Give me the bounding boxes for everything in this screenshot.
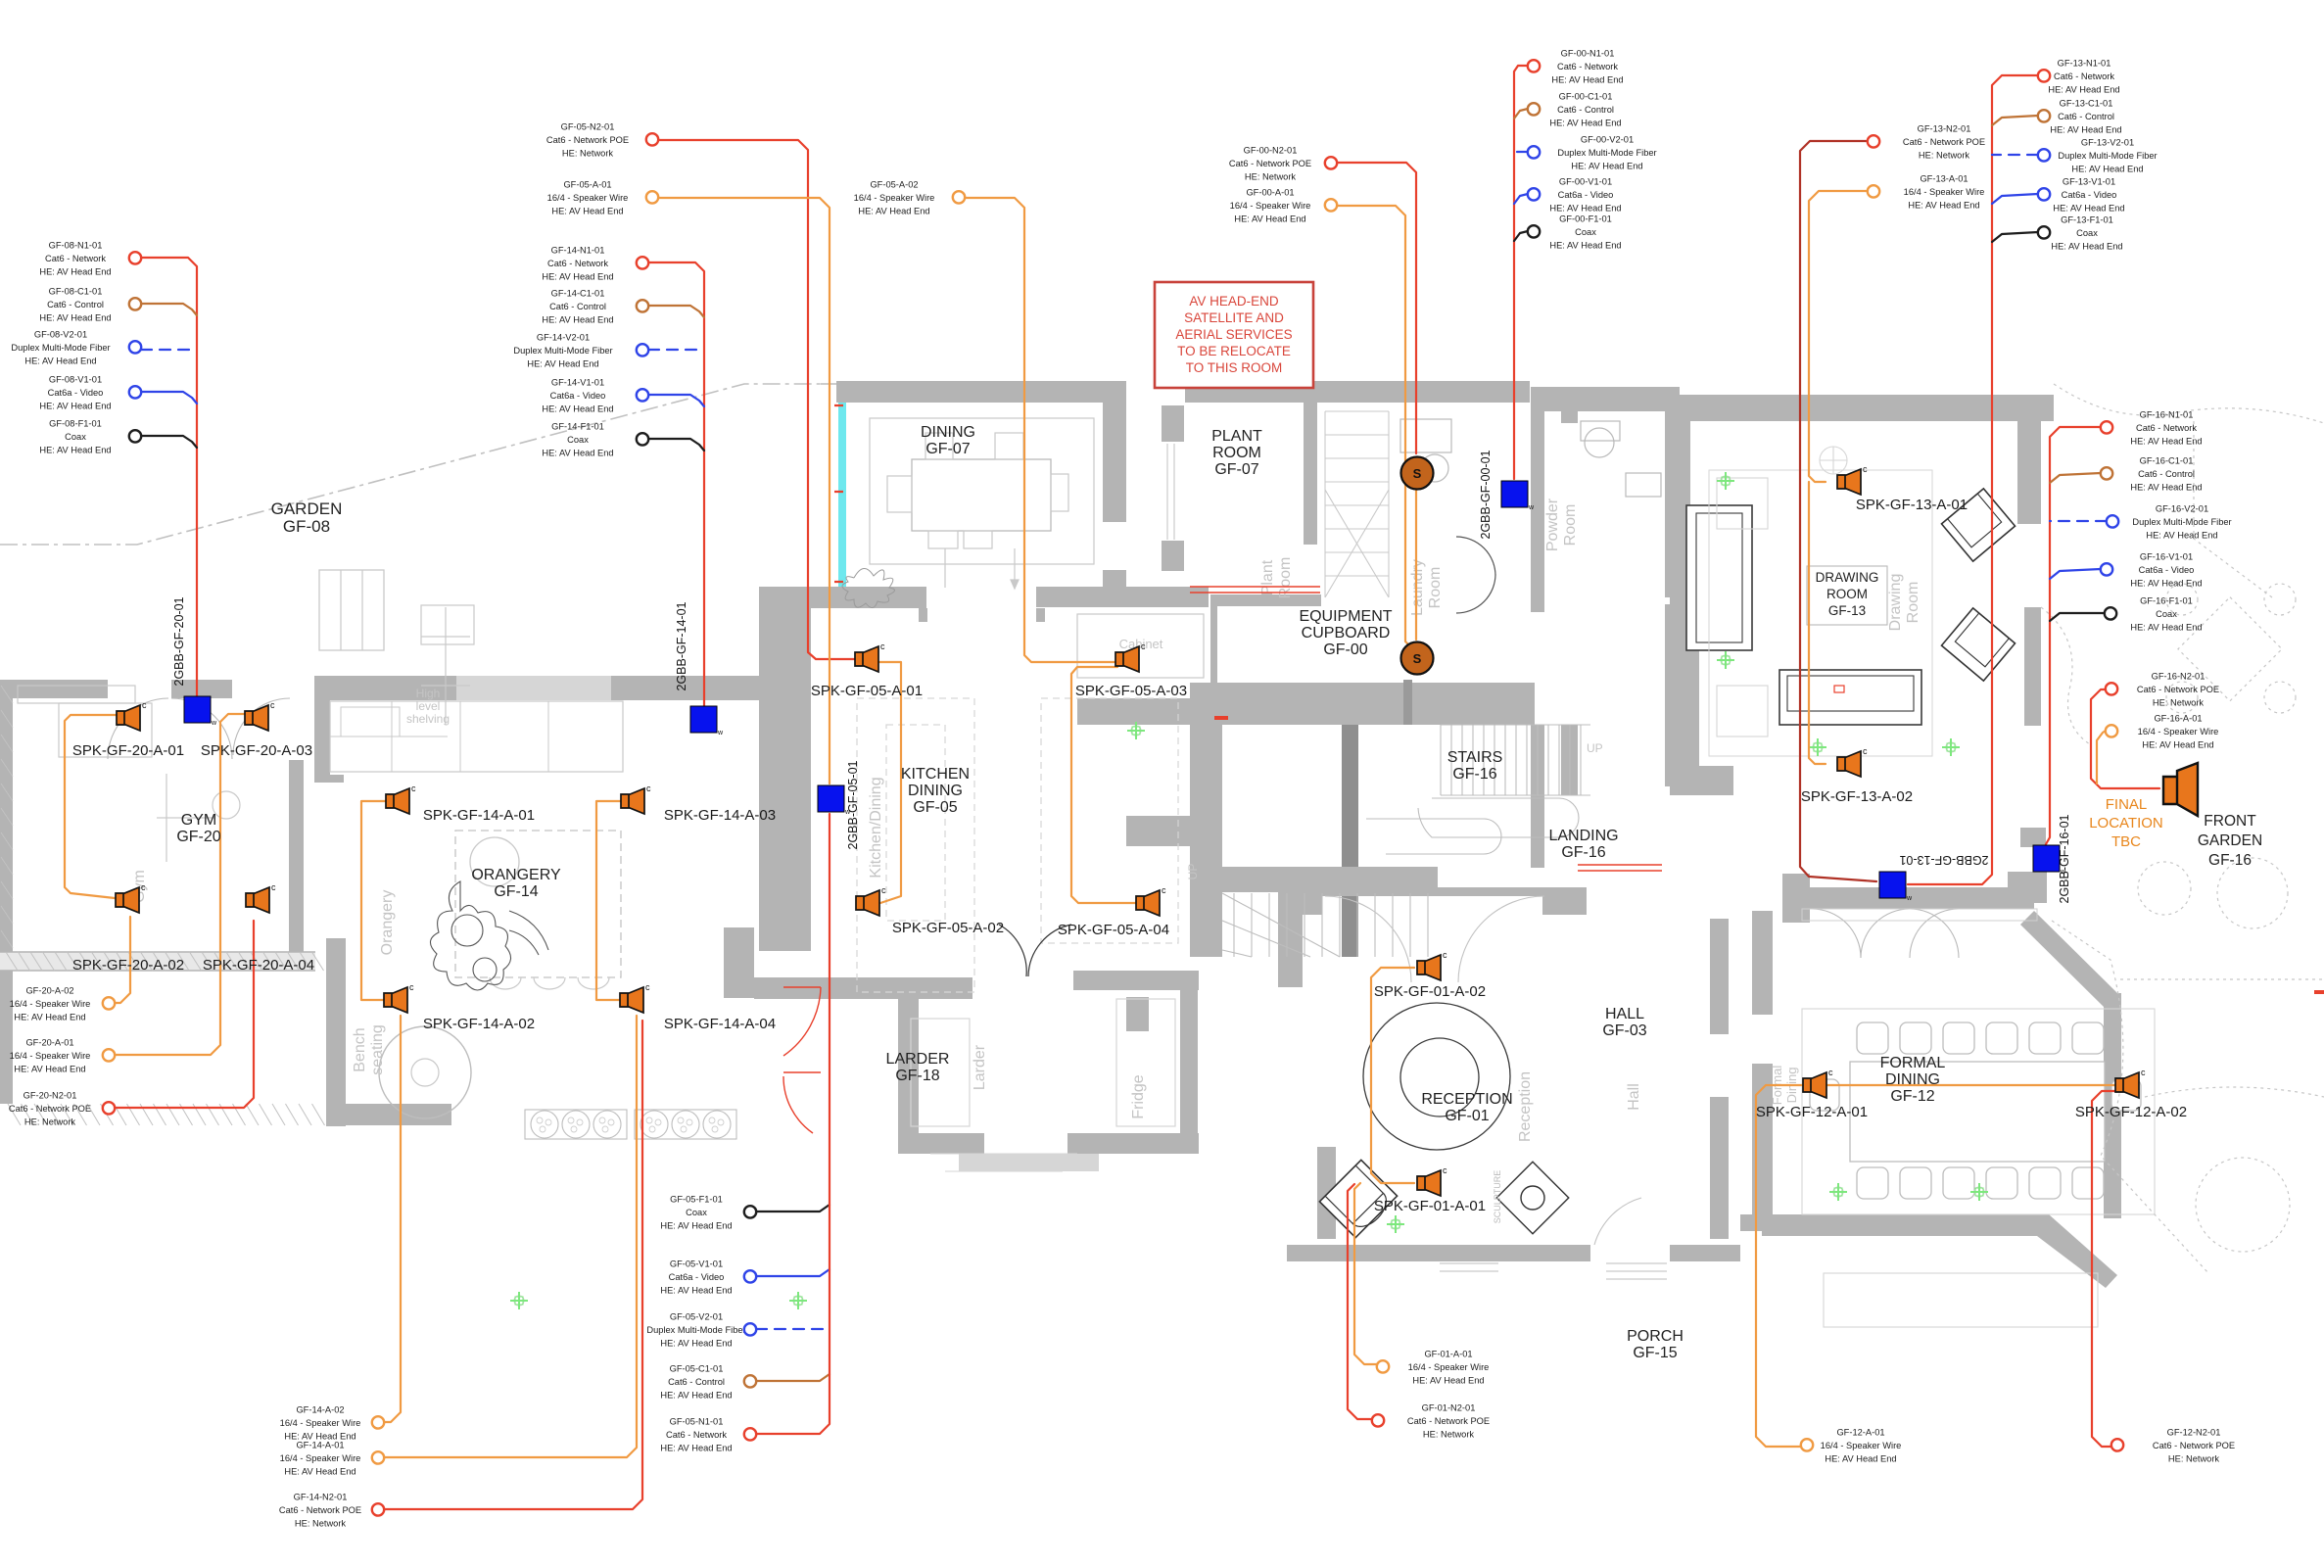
svg-text:c: c — [646, 784, 651, 793]
svg-text:SPK-GF-14-A-01: SPK-GF-14-A-01 — [423, 807, 535, 824]
svg-text:SPK-GF-01-A-01: SPK-GF-01-A-01 — [1374, 1198, 1486, 1214]
svg-text:PORCHGF-15: PORCHGF-15 — [1627, 1328, 1684, 1361]
svg-text:S: S — [1413, 651, 1422, 666]
svg-text:Plant: Plant — [1259, 559, 1276, 595]
svg-text:GF-13-C1-01Cat6 - ControlHE: A: GF-13-C1-01Cat6 - ControlHE: AV Head End — [2050, 99, 2121, 135]
svg-text:GYMGF-20: GYMGF-20 — [176, 812, 220, 845]
svg-text:GF-05-C1-01Cat6 - ControlHE: A: GF-05-C1-01Cat6 - ControlHE: AV Head End — [660, 1364, 732, 1401]
svg-text:GF-00-V1-01Cat6a - VideoHE: AV: GF-00-V1-01Cat6a - VideoHE: AV Head End — [1549, 177, 1621, 214]
svg-text:Kitchen/Dining: Kitchen/Dining — [868, 777, 884, 878]
svg-text:Room: Room — [1562, 504, 1579, 546]
svg-text:c: c — [411, 784, 416, 793]
svg-text:c: c — [1863, 746, 1868, 756]
svg-text:GF-05-V1-01Cat6a - VideoHE: AV: GF-05-V1-01Cat6a - VideoHE: AV Head End — [660, 1259, 732, 1296]
svg-text:c: c — [141, 882, 146, 892]
svg-text:SPK-GF-12-A-02: SPK-GF-12-A-02 — [2075, 1104, 2187, 1120]
svg-text:GF-08-V1-01Cat6a - VideoHE: AV: GF-08-V1-01Cat6a - VideoHE: AV Head End — [39, 375, 111, 411]
svg-text:SPK-GF-20-A-03: SPK-GF-20-A-03 — [201, 742, 312, 759]
svg-text:w: w — [211, 720, 217, 727]
svg-text:Drawing: Drawing — [1887, 574, 1904, 632]
svg-text:Hall: Hall — [1626, 1083, 1642, 1111]
svg-text:GF-13-V1-01Cat6a - VideoHE: AV: GF-13-V1-01Cat6a - VideoHE: AV Head End — [2053, 177, 2124, 214]
svg-text:PLANTROOMGF-07: PLANTROOMGF-07 — [1211, 428, 1262, 478]
svg-text:DININGGF-07: DININGGF-07 — [921, 424, 975, 457]
svg-text:AV HEAD-ENDSATELLITE ANDAERIAL: AV HEAD-ENDSATELLITE ANDAERIAL SERVICEST… — [1175, 294, 1292, 375]
svg-text:2GBB-GF-05-01: 2GBB-GF-05-01 — [846, 760, 860, 849]
svg-text:c: c — [2141, 1068, 2146, 1077]
svg-text:Larder: Larder — [972, 1044, 988, 1090]
svg-text:2GBB-GF-00-01: 2GBB-GF-00-01 — [1479, 450, 1493, 539]
svg-text:2GBB-GF-20-01: 2GBB-GF-20-01 — [172, 596, 186, 686]
svg-text:GF-08-C1-01Cat6 - ControlHE: A: GF-08-C1-01Cat6 - ControlHE: AV Head End — [39, 287, 111, 323]
svg-text:UP: UP — [1186, 864, 1200, 880]
svg-text:Laundry: Laundry — [1409, 559, 1426, 616]
svg-text:SPK-GF-05-A-02: SPK-GF-05-A-02 — [892, 920, 1004, 936]
svg-text:c: c — [142, 700, 147, 710]
svg-text:c: c — [1443, 950, 1447, 960]
svg-text:Reception: Reception — [1517, 1071, 1534, 1142]
svg-text:Room: Room — [1427, 567, 1444, 609]
svg-text:SPK-GF-05-A-03: SPK-GF-05-A-03 — [1075, 683, 1187, 699]
svg-text:GF-00-N1-01Cat6 - NetworkHE: A: GF-00-N1-01Cat6 - NetworkHE: AV Head End — [1551, 49, 1623, 85]
svg-text:2GBB-GF-16-01: 2GBB-GF-16-01 — [2058, 814, 2071, 903]
svg-text:SPK-GF-20-A-04: SPK-GF-20-A-04 — [203, 957, 314, 974]
svg-text:S: S — [1413, 466, 1422, 481]
svg-text:GF-16-V1-01Cat6a - VideoHE: AV: GF-16-V1-01Cat6a - VideoHE: AV Head End — [2130, 552, 2202, 589]
svg-text:HALLGF-03: HALLGF-03 — [1602, 1006, 1646, 1039]
svg-text:SPK-GF-14-A-03: SPK-GF-14-A-03 — [664, 807, 776, 824]
svg-text:Powder: Powder — [1544, 498, 1561, 551]
svg-text:Room: Room — [1905, 582, 1921, 624]
svg-text:GF-13-N1-01Cat6 - NetworkHE: A: GF-13-N1-01Cat6 - NetworkHE: AV Head End — [2048, 59, 2119, 95]
svg-text:c: c — [270, 700, 275, 710]
svg-text:SPK-GF-14-A-04: SPK-GF-14-A-04 — [664, 1016, 776, 1032]
svg-text:STAIRSGF-16: STAIRSGF-16 — [1447, 749, 1503, 783]
svg-text:c: c — [1828, 1068, 1833, 1077]
svg-text:SPK-GF-01-A-02: SPK-GF-01-A-02 — [1374, 983, 1486, 1000]
svg-text:c: c — [271, 882, 276, 892]
svg-text:c: c — [880, 641, 885, 651]
svg-text:SPK-GF-05-A-01: SPK-GF-05-A-01 — [811, 683, 923, 699]
svg-text:Orangery: Orangery — [379, 890, 396, 956]
svg-text:SPK-GF-05-A-04: SPK-GF-05-A-04 — [1058, 922, 1169, 938]
svg-text:Fridge: Fridge — [1130, 1074, 1147, 1118]
svg-text:c: c — [1162, 885, 1166, 895]
svg-text:GF-14-N1-01Cat6 - NetworkHE: A: GF-14-N1-01Cat6 - NetworkHE: AV Head End — [542, 246, 613, 282]
svg-text:seating: seating — [369, 1024, 386, 1075]
svg-text:c: c — [1141, 641, 1146, 651]
svg-text:GF-14-C1-01Cat6 - ControlHE: A: GF-14-C1-01Cat6 - ControlHE: AV Head End — [542, 289, 613, 325]
svg-text:2GBB-GF-14-01: 2GBB-GF-14-01 — [675, 601, 688, 690]
svg-text:GF-05-N1-01Cat6 - NetworkHE: A: GF-05-N1-01Cat6 - NetworkHE: AV Head End — [660, 1417, 732, 1453]
svg-text:GF-08-N1-01Cat6 - NetworkHE: A: GF-08-N1-01Cat6 - NetworkHE: AV Head End — [39, 241, 111, 277]
svg-text:c: c — [409, 982, 414, 992]
svg-text:w: w — [717, 730, 724, 736]
svg-text:c: c — [1443, 1165, 1447, 1175]
svg-text:c: c — [1863, 464, 1868, 474]
svg-text:GF-00-C1-01Cat6 - ControlHE: A: GF-00-C1-01Cat6 - ControlHE: AV Head End — [1549, 92, 1621, 128]
svg-text:SPK-GF-20-A-01: SPK-GF-20-A-01 — [72, 742, 184, 759]
svg-text:SCULPTURE: SCULPTURE — [1493, 1170, 1502, 1224]
svg-text:SPK-GF-13-A-02: SPK-GF-13-A-02 — [1801, 788, 1913, 805]
svg-text:UP: UP — [1587, 741, 1603, 755]
svg-text:Bench: Bench — [352, 1027, 368, 1071]
svg-text:GF-16-N1-01Cat6 - NetworkHE: A: GF-16-N1-01Cat6 - NetworkHE: AV Head End — [2130, 410, 2202, 447]
svg-text:SPK-GF-14-A-02: SPK-GF-14-A-02 — [423, 1016, 535, 1032]
svg-text:w: w — [1906, 895, 1913, 902]
svg-text:c: c — [645, 982, 650, 992]
svg-text:w: w — [1528, 504, 1535, 511]
svg-text:GF-16-C1-01Cat6 - ControlHE: A: GF-16-C1-01Cat6 - ControlHE: AV Head End — [2130, 456, 2202, 493]
svg-text:GF-14-V1-01Cat6a - VideoHE: AV: GF-14-V1-01Cat6a - VideoHE: AV Head End — [542, 378, 613, 414]
svg-text:SPK-GF-13-A-01: SPK-GF-13-A-01 — [1856, 497, 1968, 513]
svg-text:c: c — [881, 885, 886, 895]
svg-text:2GBB-GF-13-01: 2GBB-GF-13-01 — [1899, 853, 1988, 867]
svg-text:SPK-GF-12-A-01: SPK-GF-12-A-01 — [1756, 1104, 1868, 1120]
svg-text:SPK-GF-20-A-02: SPK-GF-20-A-02 — [72, 957, 184, 974]
